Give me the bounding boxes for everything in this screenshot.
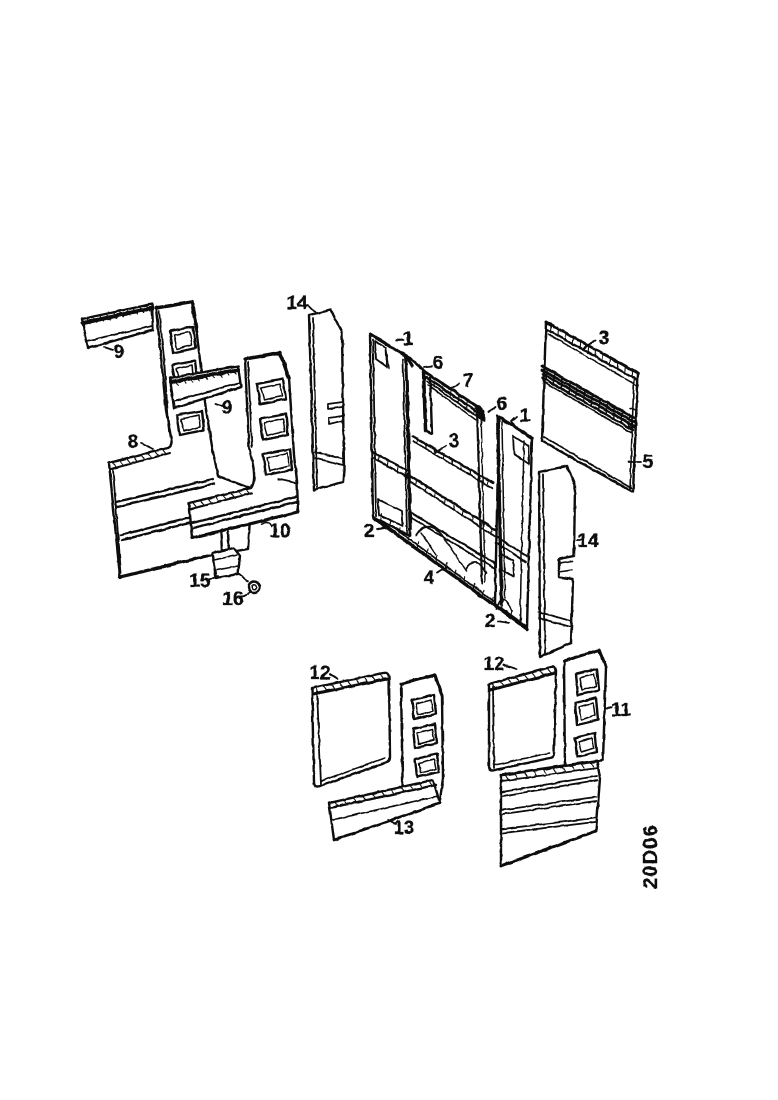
svg-text:9: 9 xyxy=(222,398,233,419)
svg-text:10: 10 xyxy=(269,521,290,542)
svg-text:2: 2 xyxy=(485,611,496,632)
svg-text:1: 1 xyxy=(520,406,531,427)
svg-text:6: 6 xyxy=(497,394,508,415)
svg-text:3: 3 xyxy=(599,328,610,349)
svg-text:6: 6 xyxy=(433,353,444,374)
svg-text:20D06: 20D06 xyxy=(640,824,662,889)
svg-text:13: 13 xyxy=(393,818,414,839)
svg-text:2: 2 xyxy=(364,521,375,542)
svg-text:14: 14 xyxy=(286,293,308,314)
svg-text:8: 8 xyxy=(128,432,139,453)
svg-text:15: 15 xyxy=(189,571,211,592)
svg-text:9: 9 xyxy=(114,342,125,363)
svg-text:1: 1 xyxy=(403,329,414,350)
svg-text:3: 3 xyxy=(449,431,460,452)
svg-text:7: 7 xyxy=(463,371,474,392)
svg-text:14: 14 xyxy=(577,531,599,552)
svg-text:16: 16 xyxy=(222,589,243,610)
svg-text:12: 12 xyxy=(309,663,330,684)
svg-text:5: 5 xyxy=(643,452,654,473)
svg-text:11: 11 xyxy=(611,700,632,721)
svg-text:4: 4 xyxy=(424,568,435,589)
svg-text:12: 12 xyxy=(483,654,504,675)
